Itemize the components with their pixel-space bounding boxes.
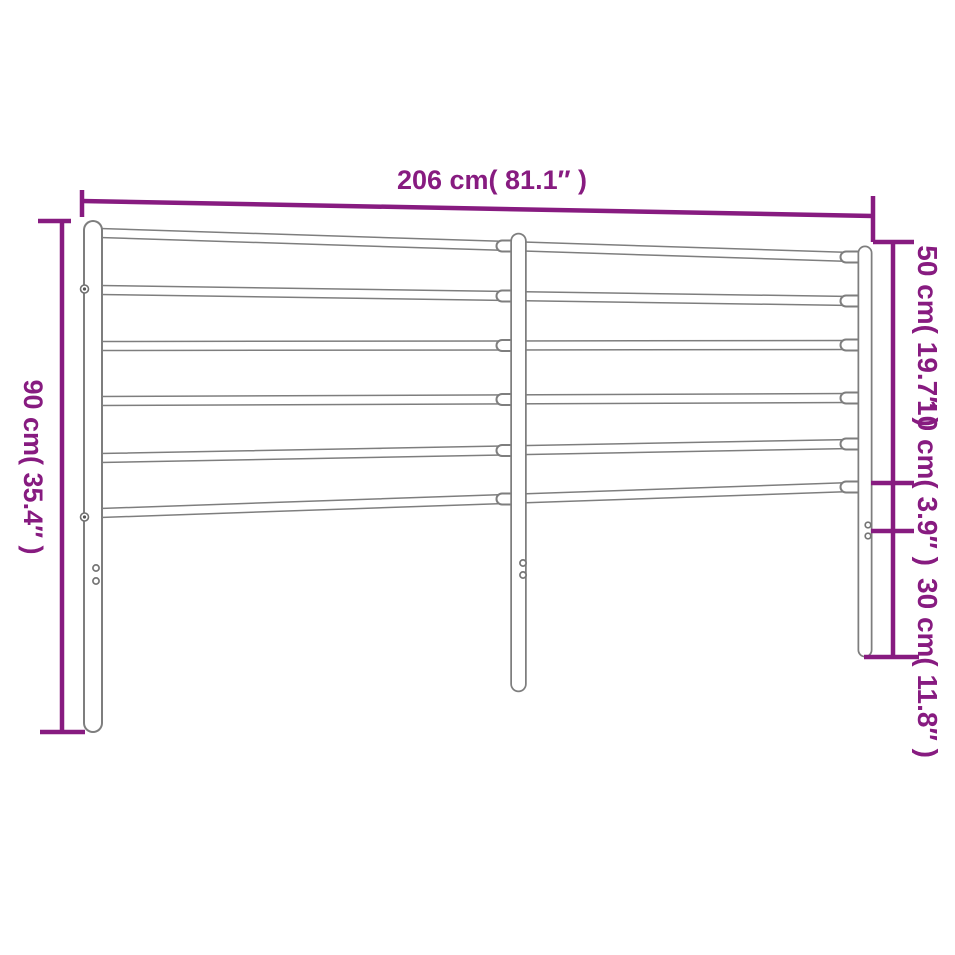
lower-section-dimension-label: 30 cm( 11.8″ )	[912, 578, 943, 758]
width-dimension-line	[82, 201, 873, 216]
width-dimension-label: 206 cm( 81.1″ )	[397, 165, 587, 195]
product-dimension-image: 206 cm( 81.1″ ) 90 cm( 35.4″ ) 50 cm( 19…	[0, 0, 955, 955]
height-dimension-label: 90 cm( 35.4″ )	[18, 379, 48, 554]
headboard-dimension-diagram: 206 cm( 81.1″ ) 90 cm( 35.4″ ) 50 cm( 19…	[0, 0, 955, 955]
headboard-rails	[100, 233, 852, 513]
post-screw-holes	[93, 522, 871, 584]
middle-section-dimension-label: 10 cm( 3.9″ )	[912, 400, 943, 566]
